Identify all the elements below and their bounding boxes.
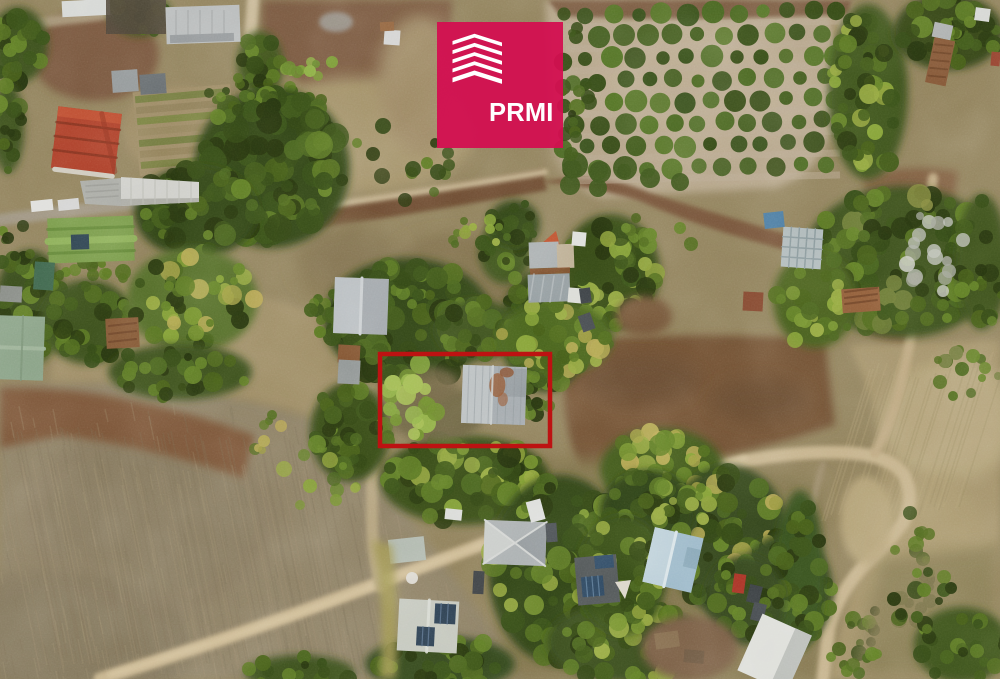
svg-text:PRMI: PRMI [489, 99, 554, 127]
